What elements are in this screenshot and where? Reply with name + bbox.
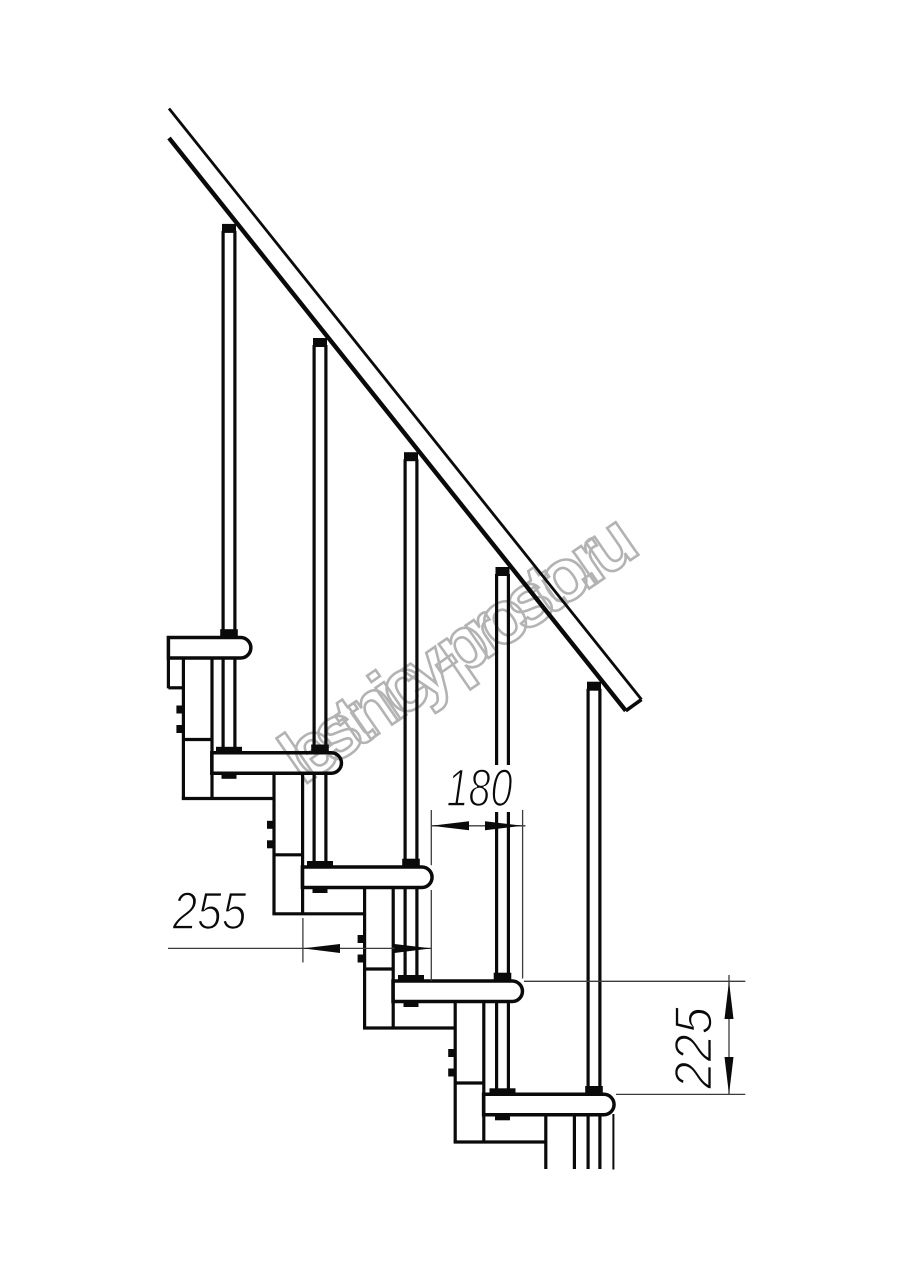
svg-text:180: 180 [447,759,513,818]
svg-text:225: 225 [665,1007,724,1090]
svg-text:255: 255 [172,882,247,941]
